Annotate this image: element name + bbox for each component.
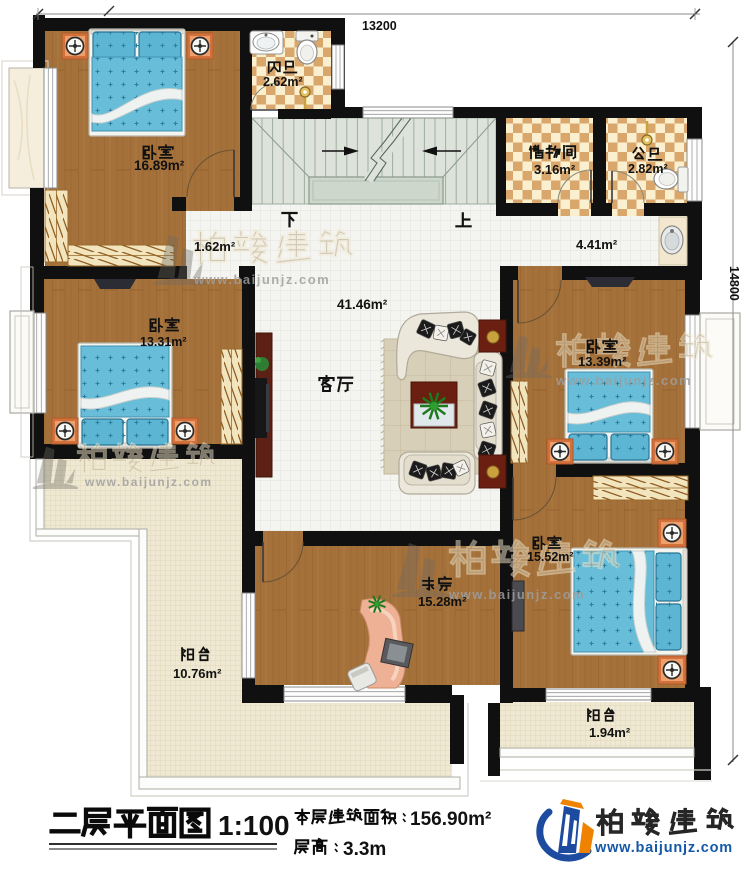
svg-text:15.28m²: 15.28m² <box>418 594 467 609</box>
svg-text:3.3m: 3.3m <box>343 839 386 860</box>
svg-text:3.16m²: 3.16m² <box>534 162 576 177</box>
svg-text:1.94m²: 1.94m² <box>589 725 631 740</box>
svg-text:2.82m²: 2.82m² <box>628 162 668 176</box>
svg-text:www.baijunjz.com: www.baijunjz.com <box>84 475 213 489</box>
svg-text:2.62m²: 2.62m² <box>263 75 303 89</box>
svg-text:14800: 14800 <box>727 266 741 301</box>
svg-text:1:100: 1:100 <box>218 810 290 841</box>
svg-text:13.31m²: 13.31m² <box>140 335 187 349</box>
svg-text:1.62m²: 1.62m² <box>194 239 236 254</box>
svg-text:www.baijunjz.com: www.baijunjz.com <box>448 587 585 602</box>
svg-text:156.90m²: 156.90m² <box>410 809 491 830</box>
svg-text:16.89m²: 16.89m² <box>134 158 185 173</box>
svg-text:13.39m²: 13.39m² <box>578 354 627 369</box>
svg-text:10.76m²: 10.76m² <box>173 666 222 681</box>
svg-text:www.baijunjz.com: www.baijunjz.com <box>555 373 692 388</box>
svg-text:13200: 13200 <box>362 19 397 33</box>
svg-text:15.52m²: 15.52m² <box>527 550 574 564</box>
svg-text:4.41m²: 4.41m² <box>576 237 618 252</box>
svg-text:41.46m²: 41.46m² <box>337 297 388 312</box>
svg-text:www.baijunjz.com: www.baijunjz.com <box>594 840 733 856</box>
svg-text:www.baijunjz.com: www.baijunjz.com <box>193 272 330 287</box>
